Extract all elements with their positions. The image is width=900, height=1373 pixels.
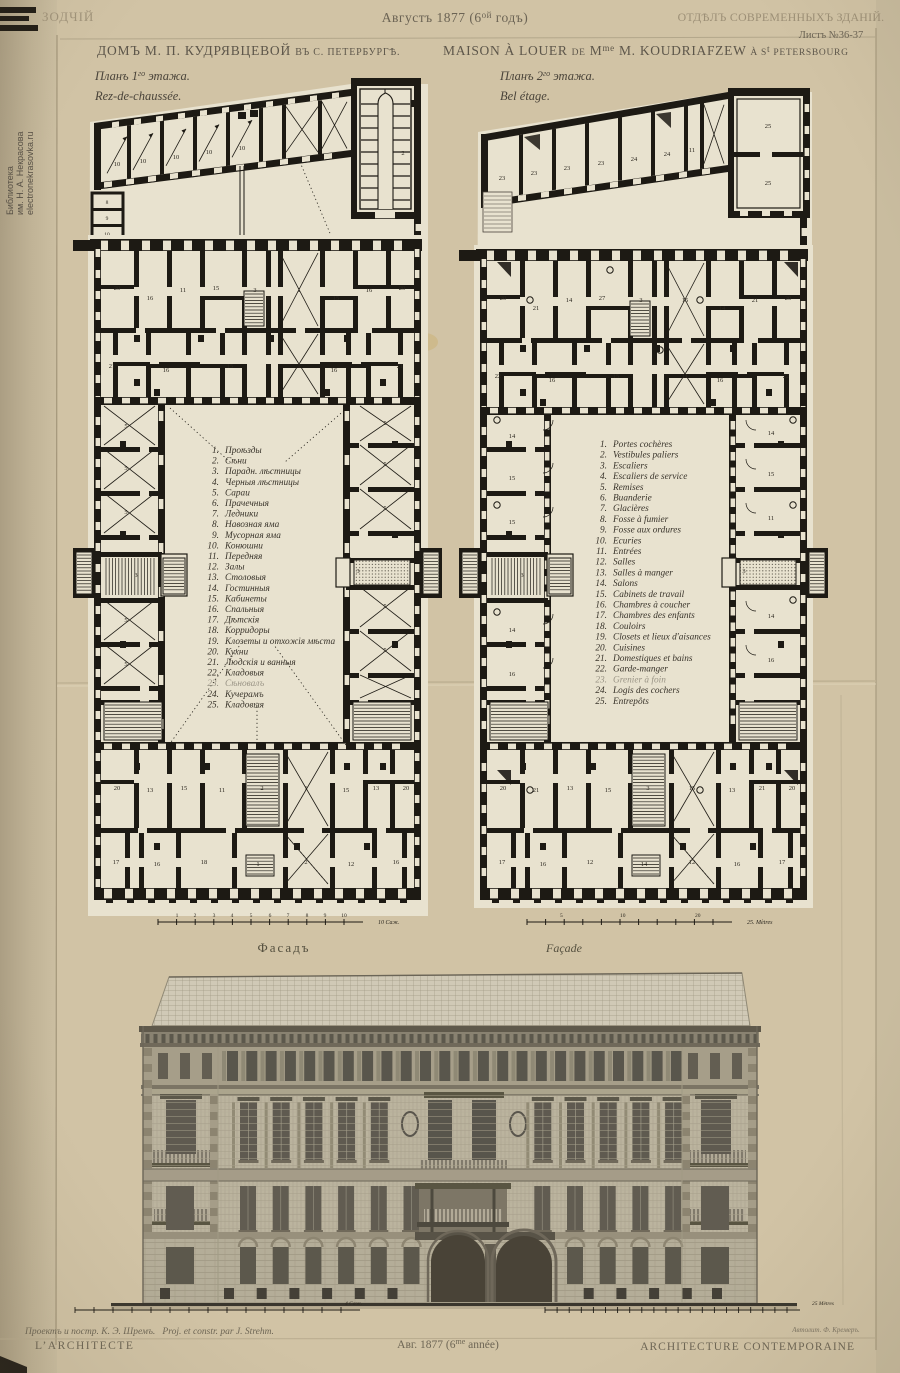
svg-text:16: 16 xyxy=(768,657,775,664)
svg-text:Couloirs: Couloirs xyxy=(613,622,646,632)
svg-text:23.: 23. xyxy=(595,675,607,685)
svg-text:6.: 6. xyxy=(600,494,607,504)
svg-text:10.: 10. xyxy=(595,536,607,546)
svg-text:19.: 19. xyxy=(595,633,607,643)
svg-text:16: 16 xyxy=(366,287,373,294)
svg-text:Entrées: Entrées xyxy=(612,547,642,557)
svg-text:Vestibules paliers: Vestibules paliers xyxy=(613,451,679,461)
svg-text:15: 15 xyxy=(213,285,220,292)
svg-text:5: 5 xyxy=(383,603,386,610)
svg-text:17: 17 xyxy=(499,859,506,866)
svg-text:23: 23 xyxy=(499,175,506,182)
svg-text:Chambres des enfants: Chambres des enfants xyxy=(613,610,695,621)
svg-text:23: 23 xyxy=(598,160,605,167)
svg-text:Garde-manger: Garde-manger xyxy=(613,665,668,675)
svg-text:Корридоры: Корридоры xyxy=(224,625,270,636)
svg-text:21.: 21. xyxy=(595,654,607,664)
svg-text:3: 3 xyxy=(213,913,216,919)
svg-text:5: 5 xyxy=(560,913,563,919)
svg-text:Escaliers de service: Escaliers de service xyxy=(612,472,687,482)
svg-text:16: 16 xyxy=(509,671,516,678)
svg-text:Grenier à foin: Grenier à foin xyxy=(613,674,666,685)
svg-text:15: 15 xyxy=(509,475,516,482)
svg-text:10: 10 xyxy=(114,161,121,168)
svg-text:Августъ 1877 (6ой годъ): Августъ 1877 (6ой годъ) xyxy=(382,10,528,25)
svg-text:27: 27 xyxy=(599,295,606,302)
svg-text:14: 14 xyxy=(509,627,516,634)
svg-text:Domestiques et bains: Domestiques et bains xyxy=(612,654,693,664)
svg-text:17.: 17. xyxy=(207,616,219,626)
svg-text:10: 10 xyxy=(173,154,180,161)
svg-text:22: 22 xyxy=(783,373,790,380)
svg-text:Кухни: Кухни xyxy=(224,647,249,657)
svg-text:16.: 16. xyxy=(207,605,219,615)
svg-text:L’ARCHITECTE: L’ARCHITECTE xyxy=(35,1340,134,1352)
svg-text:10: 10 xyxy=(341,913,347,919)
svg-text:1.: 1. xyxy=(600,440,607,450)
svg-text:Fosse à fumier: Fosse à fumier xyxy=(612,514,669,525)
svg-text:Библиотека: Библиотека xyxy=(5,166,15,215)
svg-text:24.: 24. xyxy=(207,690,219,700)
svg-text:15: 15 xyxy=(509,519,516,526)
svg-text:12: 12 xyxy=(587,859,594,866)
svg-text:16: 16 xyxy=(549,377,556,384)
svg-text:17.: 17. xyxy=(595,611,607,621)
svg-text:15: 15 xyxy=(605,787,612,794)
svg-text:11: 11 xyxy=(689,147,695,154)
svg-text:Залы: Залы xyxy=(225,563,245,573)
svg-text:8: 8 xyxy=(306,913,309,919)
svg-text:Salles à manger: Salles à manger xyxy=(613,568,673,578)
svg-text:Сараи: Сараи xyxy=(225,488,250,498)
svg-text:24: 24 xyxy=(631,156,638,163)
svg-text:11.: 11. xyxy=(208,552,219,562)
svg-text:Проѣзды: Проѣзды xyxy=(224,445,262,456)
svg-text:13: 13 xyxy=(567,785,574,792)
svg-text:21.: 21. xyxy=(207,658,219,668)
svg-text:Проектъ и постр. К. Э. Шремъ.: Проектъ и постр. К. Э. Шремъ. Proj. et c… xyxy=(24,1327,274,1337)
svg-text:14: 14 xyxy=(641,861,648,868)
svg-text:21: 21 xyxy=(752,297,759,304)
svg-text:Листъ №36-37: Листъ №36-37 xyxy=(799,30,864,41)
svg-text:20: 20 xyxy=(500,295,507,302)
svg-text:5: 5 xyxy=(124,661,127,668)
svg-text:Façade: Façade xyxy=(545,941,583,955)
svg-text:11: 11 xyxy=(682,373,688,380)
svg-text:25 Mètres: 25 Mètres xyxy=(812,1301,834,1307)
svg-text:3: 3 xyxy=(253,287,256,294)
svg-text:15: 15 xyxy=(227,363,234,370)
svg-text:15: 15 xyxy=(613,373,620,380)
svg-text:Cuisines: Cuisines xyxy=(613,643,645,653)
svg-text:Мусорная яма: Мусорная яма xyxy=(224,531,281,541)
svg-text:13: 13 xyxy=(729,787,736,794)
svg-text:Rez-de-chaussée.: Rez-de-chaussée. xyxy=(94,89,181,103)
svg-text:11: 11 xyxy=(180,287,186,294)
svg-text:5: 5 xyxy=(250,913,253,919)
svg-text:15: 15 xyxy=(682,297,689,304)
svg-text:15: 15 xyxy=(333,295,340,302)
svg-text:16.: 16. xyxy=(595,601,607,611)
svg-text:Portes cochères: Portes cochères xyxy=(612,440,673,450)
svg-text:15: 15 xyxy=(343,787,350,794)
svg-text:12: 12 xyxy=(348,861,355,868)
svg-text:2: 2 xyxy=(194,913,197,919)
svg-text:ОТДѢЛЪ СОВРЕМЕННЫХЪ ЗДАНІЙ.: ОТДѢЛЪ СОВРЕМЕННЫХЪ ЗДАНІЙ. xyxy=(678,10,885,24)
svg-text:Дѣтскія: Дѣтскія xyxy=(224,616,259,626)
svg-text:13.: 13. xyxy=(207,573,219,583)
svg-text:14: 14 xyxy=(768,613,775,620)
svg-text:2.: 2. xyxy=(212,457,219,467)
svg-text:3: 3 xyxy=(646,785,649,792)
svg-text:6.: 6. xyxy=(212,499,219,509)
svg-text:3: 3 xyxy=(134,572,137,579)
svg-text:17: 17 xyxy=(113,859,120,866)
svg-text:20: 20 xyxy=(789,785,796,792)
svg-text:10: 10 xyxy=(239,145,246,152)
svg-text:Chambres à coucher: Chambres à coucher xyxy=(613,601,690,611)
svg-text:11: 11 xyxy=(219,787,225,794)
svg-text:21: 21 xyxy=(759,785,766,792)
svg-text:10: 10 xyxy=(140,158,147,165)
svg-text:7: 7 xyxy=(287,913,290,919)
svg-text:ARCHITECTURE CONTEMPORAINE: ARCHITECTURE CONTEMPORAINE xyxy=(640,1341,855,1353)
svg-text:Ледники: Ледники xyxy=(224,509,259,520)
svg-text:19.: 19. xyxy=(207,637,219,647)
svg-text:23: 23 xyxy=(564,165,571,172)
svg-text:1: 1 xyxy=(304,785,307,792)
svg-text:25: 25 xyxy=(765,180,772,187)
svg-text:22.: 22. xyxy=(207,669,219,679)
svg-text:16: 16 xyxy=(163,367,170,374)
svg-text:20.: 20. xyxy=(207,647,219,657)
svg-text:3: 3 xyxy=(520,572,523,579)
svg-text:2: 2 xyxy=(260,785,263,792)
svg-text:Logis des cochers: Logis des cochers xyxy=(612,686,680,696)
svg-text:Glacières: Glacières xyxy=(613,504,649,514)
svg-text:Кладовыя: Кладовыя xyxy=(224,668,264,679)
svg-text:15: 15 xyxy=(689,785,696,792)
svg-text:Remises: Remises xyxy=(612,483,644,493)
svg-text:Сѣни: Сѣни xyxy=(225,457,247,467)
svg-text:Кучерамъ: Кучерамъ xyxy=(224,690,264,700)
svg-text:Клозеты и отхожія мѣста: Клозеты и отхожія мѣста xyxy=(224,637,335,647)
svg-text:25.: 25. xyxy=(207,700,219,710)
svg-text:Конюшни: Конюшни xyxy=(224,541,263,551)
svg-text:20: 20 xyxy=(500,785,507,792)
svg-text:14: 14 xyxy=(566,297,573,304)
svg-text:Авг. 1877 (6me année): Авг. 1877 (6me année) xyxy=(397,1337,499,1351)
svg-text:23: 23 xyxy=(531,170,538,177)
svg-text:16: 16 xyxy=(154,861,161,868)
svg-text:4 Саж.: 4 Саж. xyxy=(345,1300,362,1307)
svg-text:11: 11 xyxy=(768,515,774,522)
svg-text:25.: 25. xyxy=(595,697,607,707)
svg-text:5: 5 xyxy=(383,420,386,427)
svg-text:10.: 10. xyxy=(207,541,219,551)
svg-text:20: 20 xyxy=(403,785,410,792)
svg-text:Cabinets de travail: Cabinets de travail xyxy=(613,590,685,600)
svg-text:11.: 11. xyxy=(596,547,607,557)
svg-text:20.: 20. xyxy=(595,643,607,653)
svg-text:17: 17 xyxy=(779,859,786,866)
svg-text:20: 20 xyxy=(785,295,792,302)
svg-text:14: 14 xyxy=(509,433,516,440)
svg-text:18: 18 xyxy=(201,859,208,866)
svg-text:18.: 18. xyxy=(207,626,219,636)
svg-text:5: 5 xyxy=(383,505,386,512)
svg-text:4: 4 xyxy=(231,913,234,919)
svg-text:7.: 7. xyxy=(600,504,607,514)
svg-text:Прачечныя: Прачечныя xyxy=(224,499,269,509)
svg-text:5: 5 xyxy=(124,509,127,516)
svg-text:1.: 1. xyxy=(212,446,219,456)
svg-text:21: 21 xyxy=(109,363,116,370)
svg-text:4.: 4. xyxy=(212,478,219,488)
svg-text:10 Саж.: 10 Саж. xyxy=(378,920,400,926)
svg-text:23.: 23. xyxy=(207,679,219,689)
svg-text:Bel étage.: Bel étage. xyxy=(500,89,550,103)
svg-text:Парадн. лѣстницы: Парадн. лѣстницы xyxy=(224,466,301,477)
svg-text:6: 6 xyxy=(269,913,272,919)
svg-text:21: 21 xyxy=(533,787,540,794)
svg-text:2: 2 xyxy=(401,150,404,157)
svg-text:Salons: Salons xyxy=(613,579,638,589)
svg-text:Ecuries: Ecuries xyxy=(612,536,642,546)
svg-text:Столовыя: Столовыя xyxy=(225,573,266,583)
svg-text:Людскія и ванныя: Людскія и ванныя xyxy=(224,657,296,668)
svg-text:1: 1 xyxy=(297,287,300,294)
svg-text:16: 16 xyxy=(147,295,154,302)
svg-text:20: 20 xyxy=(114,785,121,792)
svg-text:16: 16 xyxy=(717,377,724,384)
svg-text:15: 15 xyxy=(181,785,188,792)
svg-text:14: 14 xyxy=(768,430,775,437)
svg-text:Closets et lieux d'aisances: Closets et lieux d'aisances xyxy=(613,633,711,643)
svg-text:3: 3 xyxy=(742,568,745,575)
svg-text:21: 21 xyxy=(533,305,540,312)
svg-text:24.: 24. xyxy=(595,686,607,696)
svg-text:3.: 3. xyxy=(599,461,607,471)
svg-text:5: 5 xyxy=(383,461,386,468)
svg-text:2: 2 xyxy=(304,859,307,866)
svg-text:2.: 2. xyxy=(600,451,607,461)
svg-text:5: 5 xyxy=(124,617,127,624)
svg-text:18.: 18. xyxy=(595,622,607,632)
svg-text:25: 25 xyxy=(765,123,772,130)
svg-text:24: 24 xyxy=(664,151,671,158)
svg-text:9.: 9. xyxy=(600,526,607,536)
svg-text:Фасадъ: Фасадъ xyxy=(257,940,310,955)
svg-text:9: 9 xyxy=(324,913,327,919)
svg-text:Кладовыя: Кладовыя xyxy=(224,699,264,710)
svg-text:5.: 5. xyxy=(212,488,219,498)
svg-text:9.: 9. xyxy=(212,531,219,541)
svg-text:1: 1 xyxy=(297,363,300,370)
svg-text:ЗОДЧІЙ: ЗОДЧІЙ xyxy=(42,9,94,24)
svg-text:Escaliers: Escaliers xyxy=(612,461,648,471)
svg-text:Salles: Salles xyxy=(613,558,636,568)
svg-text:Гостинныя: Гостинныя xyxy=(224,584,270,594)
svg-text:Черныя лѣстницы: Черныя лѣстницы xyxy=(225,478,299,488)
svg-text:Спальныя: Спальныя xyxy=(225,605,264,615)
svg-text:9: 9 xyxy=(106,216,109,222)
svg-text:21: 21 xyxy=(397,363,404,370)
svg-text:3: 3 xyxy=(356,568,359,575)
svg-text:14: 14 xyxy=(719,305,726,312)
svg-text:12.: 12. xyxy=(207,563,219,573)
svg-text:15.: 15. xyxy=(595,590,607,600)
svg-text:3: 3 xyxy=(639,297,642,304)
svg-text:7.: 7. xyxy=(212,510,219,520)
svg-text:Сѣновалъ: Сѣновалъ xyxy=(225,679,264,689)
svg-text:12.: 12. xyxy=(595,558,607,568)
svg-text:5: 5 xyxy=(383,647,386,654)
svg-text:5: 5 xyxy=(124,465,127,472)
svg-text:16: 16 xyxy=(393,859,400,866)
svg-text:им. Н. А. Некрасова: им. Н. А. Некрасова xyxy=(15,132,25,215)
svg-text:Buanderie: Buanderie xyxy=(613,494,652,504)
svg-text:1: 1 xyxy=(256,861,259,868)
svg-text:1: 1 xyxy=(176,913,179,919)
svg-text:8.: 8. xyxy=(600,515,607,525)
svg-text:15: 15 xyxy=(768,471,775,478)
svg-text:8.: 8. xyxy=(212,520,219,530)
svg-text:22.: 22. xyxy=(595,665,607,675)
svg-text:25. Мètres: 25. Мètres xyxy=(747,920,773,926)
svg-text:12: 12 xyxy=(689,859,696,866)
svg-text:13: 13 xyxy=(373,785,380,792)
svg-text:14.: 14. xyxy=(207,584,219,594)
svg-text:20: 20 xyxy=(114,285,121,292)
svg-text:22: 22 xyxy=(495,373,502,380)
svg-text:4.: 4. xyxy=(600,472,607,482)
svg-text:Entrepôts: Entrepôts xyxy=(612,697,649,707)
svg-text:15.: 15. xyxy=(207,594,219,604)
svg-text:10: 10 xyxy=(620,913,626,919)
svg-text:16: 16 xyxy=(734,861,741,868)
svg-text:Навозная яма: Навозная яма xyxy=(224,520,280,530)
svg-text:3.: 3. xyxy=(211,467,219,477)
svg-text:16: 16 xyxy=(331,367,338,374)
svg-text:10: 10 xyxy=(206,149,213,156)
svg-text:13.: 13. xyxy=(595,568,607,578)
svg-text:Автолит. Ф. Кремеръ.: Автолит. Ф. Кремеръ. xyxy=(791,1326,860,1334)
svg-text:5.: 5. xyxy=(600,483,607,493)
svg-text:Передняя: Передняя xyxy=(224,551,262,562)
svg-text:8: 8 xyxy=(106,200,109,206)
svg-text:14.: 14. xyxy=(595,579,607,589)
svg-text:Кабинеты: Кабинеты xyxy=(224,593,267,604)
svg-text:20: 20 xyxy=(399,285,406,292)
svg-text:electronekrasovka.ru: electronekrasovka.ru xyxy=(25,131,35,215)
svg-text:20: 20 xyxy=(695,913,701,919)
svg-text:16: 16 xyxy=(540,861,547,868)
svg-text:13: 13 xyxy=(147,787,154,794)
svg-text:Fosse aux ordures: Fosse aux ordures xyxy=(612,526,681,536)
svg-text:5: 5 xyxy=(124,423,127,430)
